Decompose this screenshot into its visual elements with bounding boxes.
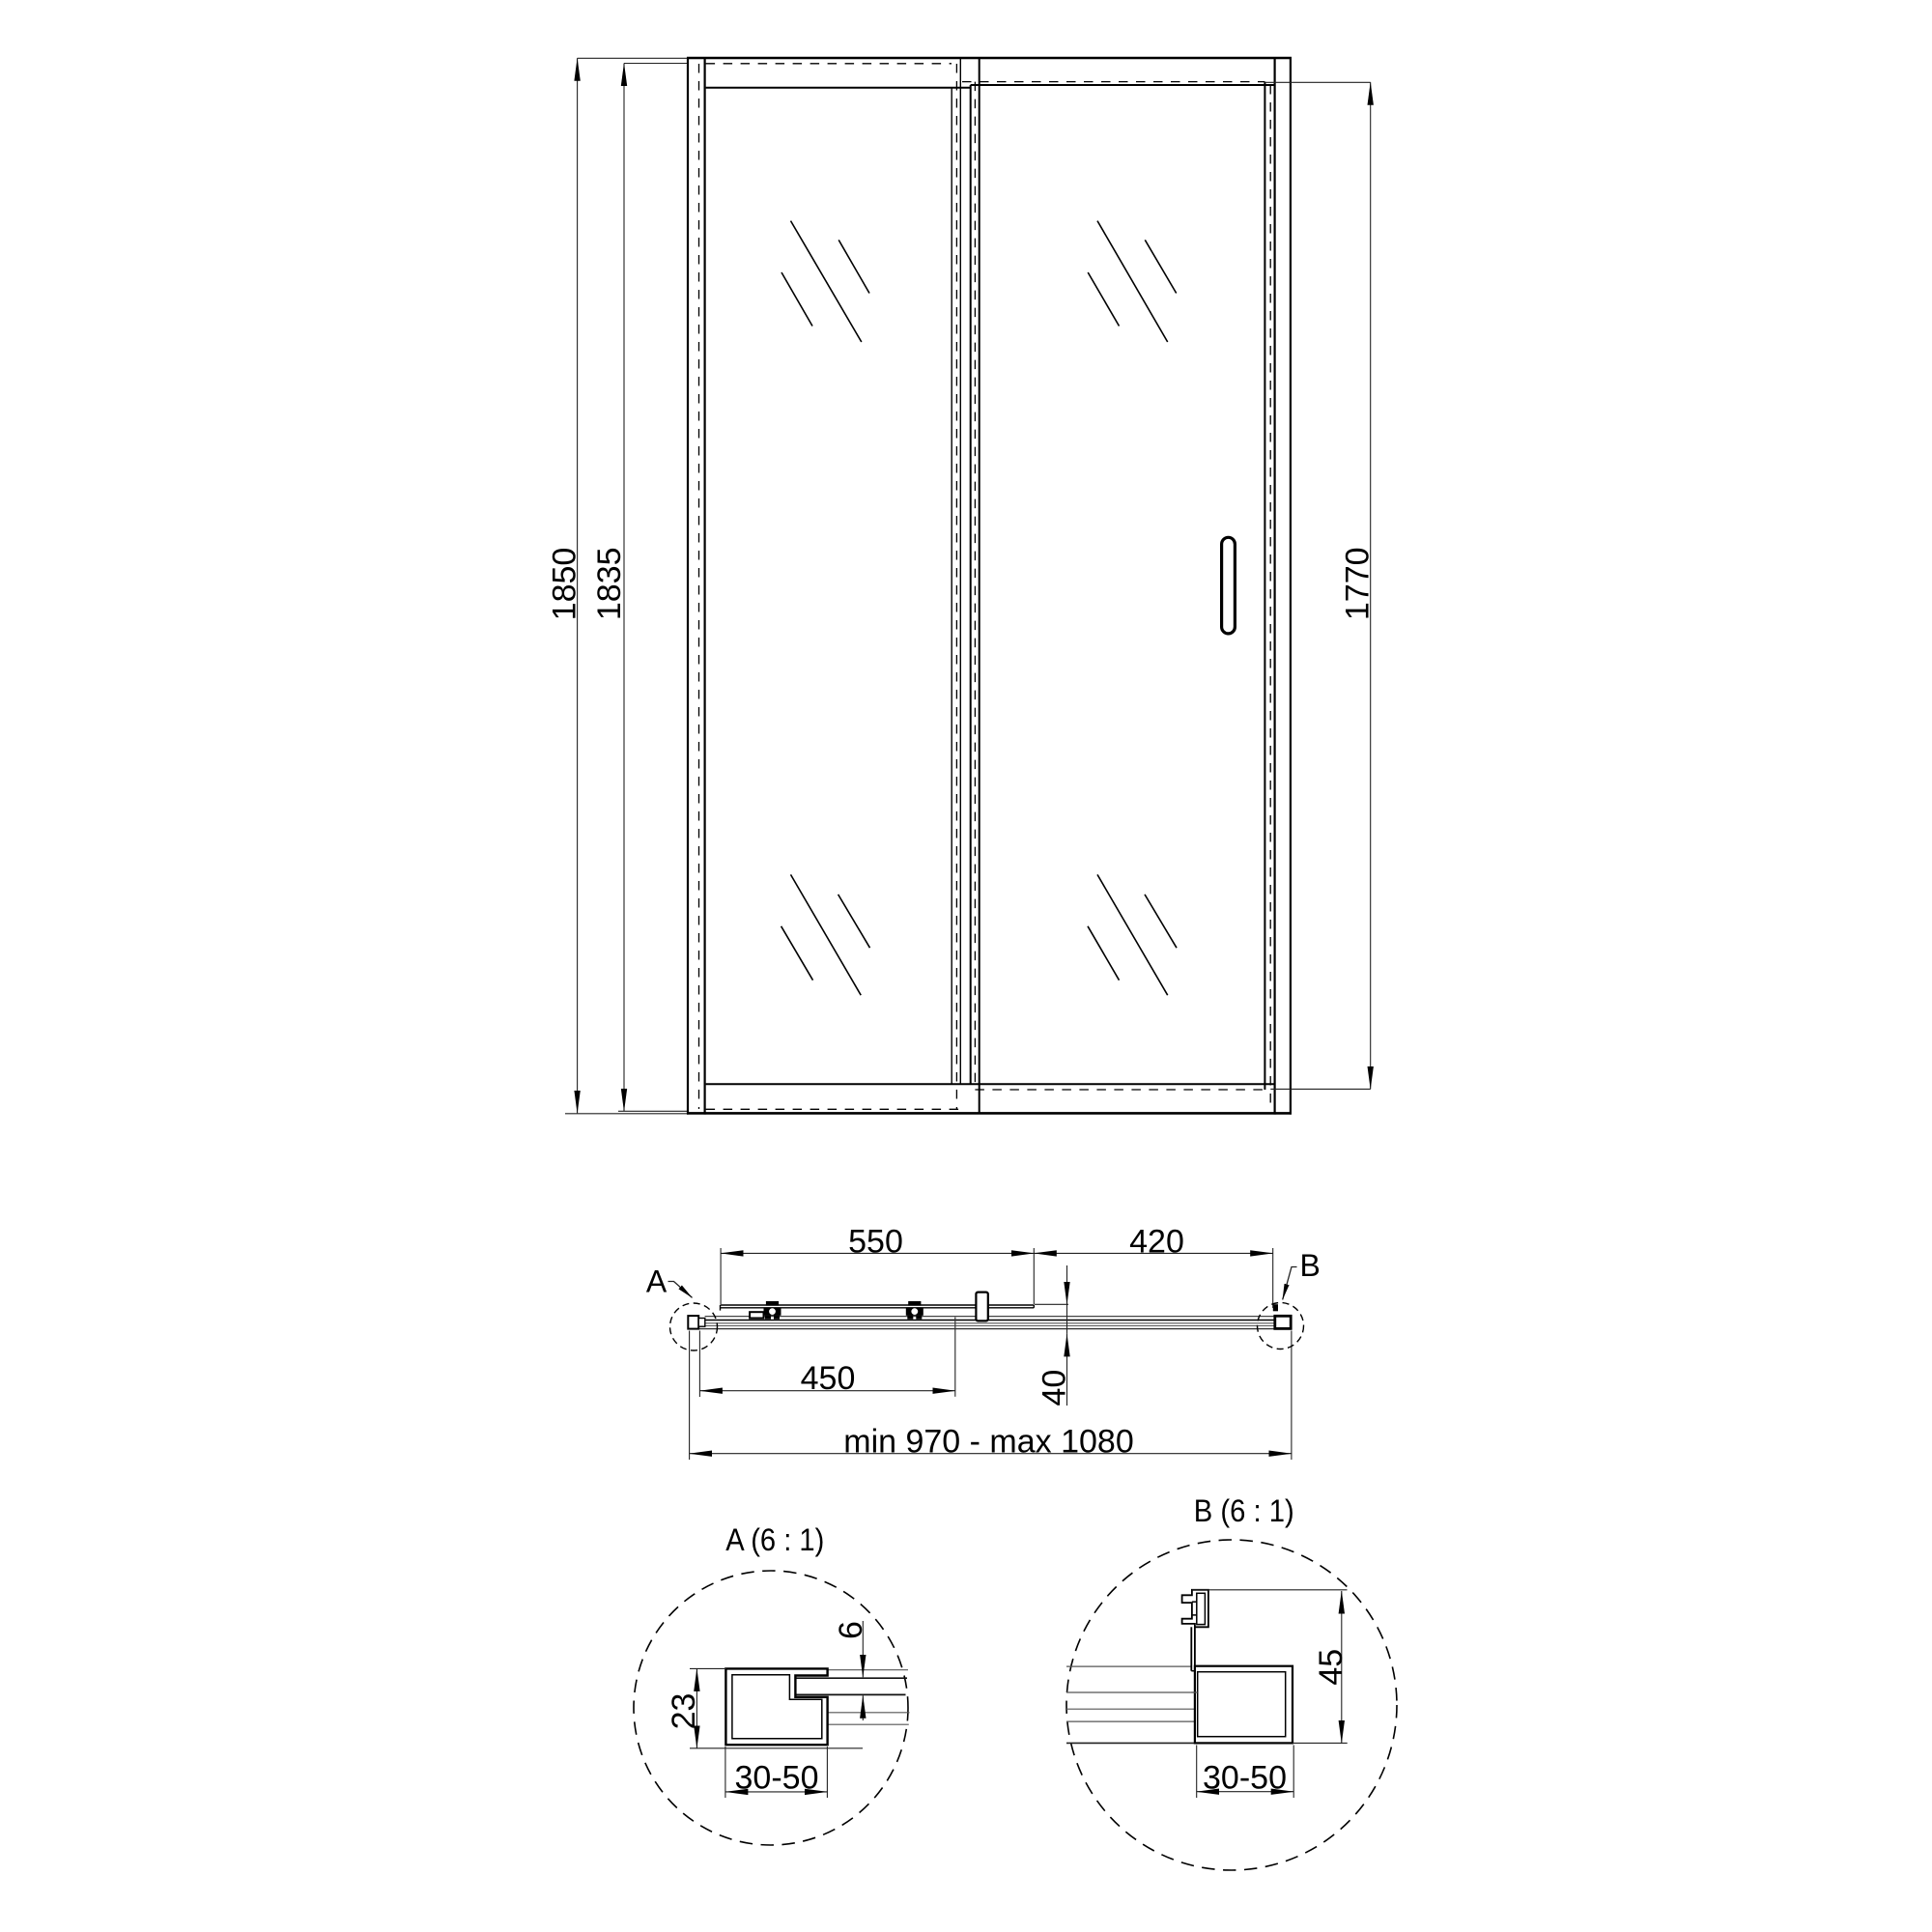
svg-text:40: 40	[1037, 1370, 1073, 1406]
svg-text:420: 420	[1129, 1224, 1184, 1261]
svg-text:B: B	[1300, 1248, 1321, 1283]
svg-text:1850: 1850	[547, 548, 583, 621]
svg-text:1770: 1770	[1340, 547, 1377, 620]
svg-text:min 970 - max 1080: min 970 - max 1080	[843, 1424, 1134, 1461]
svg-text:450: 450	[801, 1360, 856, 1397]
svg-text:23: 23	[666, 1693, 702, 1730]
svg-text:6: 6	[833, 1621, 869, 1639]
svg-text:A (6 : 1): A (6 : 1)	[725, 1522, 824, 1557]
svg-text:B (6 : 1): B (6 : 1)	[1194, 1493, 1294, 1528]
svg-text:1835: 1835	[591, 547, 628, 620]
svg-text:30-50: 30-50	[735, 1760, 819, 1797]
svg-text:A: A	[646, 1264, 668, 1298]
svg-text:45: 45	[1313, 1649, 1350, 1686]
svg-text:30-50: 30-50	[1203, 1759, 1287, 1796]
svg-text:550: 550	[848, 1224, 903, 1261]
